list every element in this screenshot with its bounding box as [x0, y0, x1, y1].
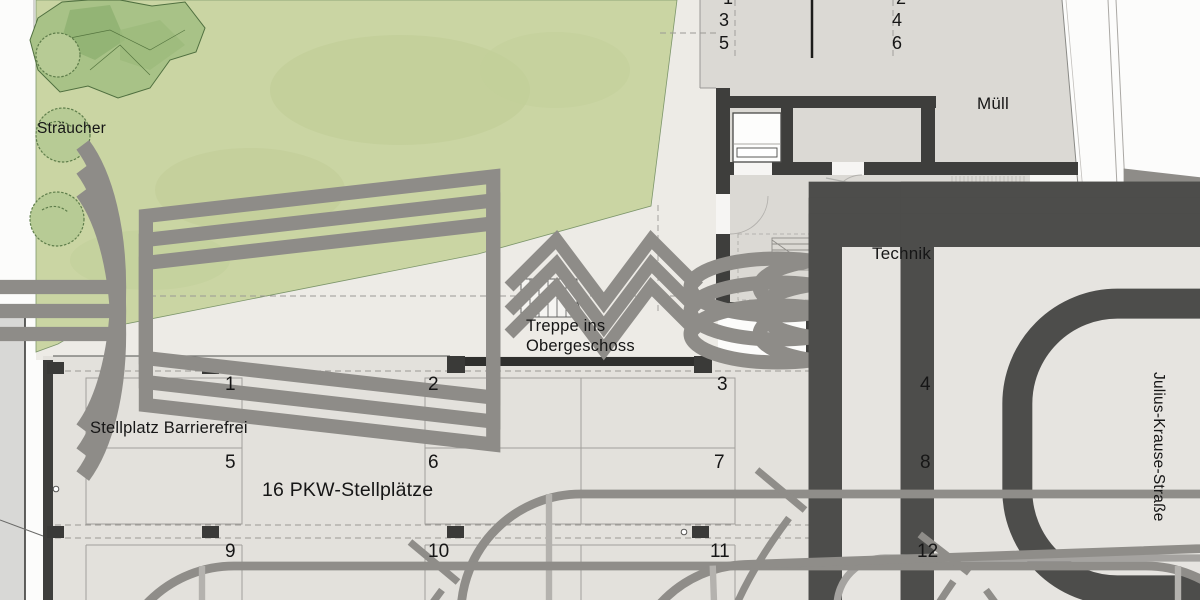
stair-label-line1: Treppe ins	[526, 317, 605, 336]
parking-count-label: 16 PKW-Stellplätze	[262, 479, 433, 502]
stair-label-line2: Obergeschoss	[526, 337, 635, 356]
survey-point	[53, 486, 59, 492]
plan-drawing	[0, 0, 1200, 600]
bike-spot-number: 1	[723, 0, 733, 9]
street-name-label: Julius-Krause-Straße	[1149, 372, 1167, 542]
elevator-icon	[733, 113, 781, 162]
bike-spot-number: 5	[719, 33, 729, 54]
parking-spot-number: 1	[225, 374, 236, 396]
shrubs-label: Sträucher	[37, 120, 106, 138]
floor-plan: Sträucher Müll Technik Treppe ins Oberge…	[0, 0, 1200, 600]
parking-spot-number: 10	[428, 541, 449, 563]
parking-spot-number: 12	[917, 541, 938, 563]
bike-spot-number: 4	[892, 10, 902, 31]
parking-spot-number: 4	[920, 374, 931, 396]
parking-spot-number: 5	[225, 452, 236, 474]
parking-spot-number: 2	[428, 374, 439, 396]
shrub-icon	[30, 192, 84, 246]
boundary-wall	[43, 360, 53, 600]
parking-spot-number: 8	[920, 452, 931, 474]
parking-spot-number: 6	[428, 452, 439, 474]
parking-spot-number: 11	[710, 541, 730, 563]
accessible-spot-label: Stellplatz Barrierefrei	[90, 419, 248, 438]
technik-room-label: Technik	[872, 244, 931, 264]
bike-spot-number: 3	[719, 10, 729, 31]
shrub-icon	[36, 33, 80, 77]
survey-point	[681, 529, 687, 535]
parking-spot-number: 7	[714, 452, 725, 474]
bike-spot-number: 6	[892, 33, 902, 54]
waste-room-label: Müll	[977, 94, 1009, 114]
bike-spot-number: 2	[896, 0, 906, 9]
parking-spot-number: 3	[717, 374, 728, 396]
parking-spot-number: 9	[225, 541, 236, 563]
